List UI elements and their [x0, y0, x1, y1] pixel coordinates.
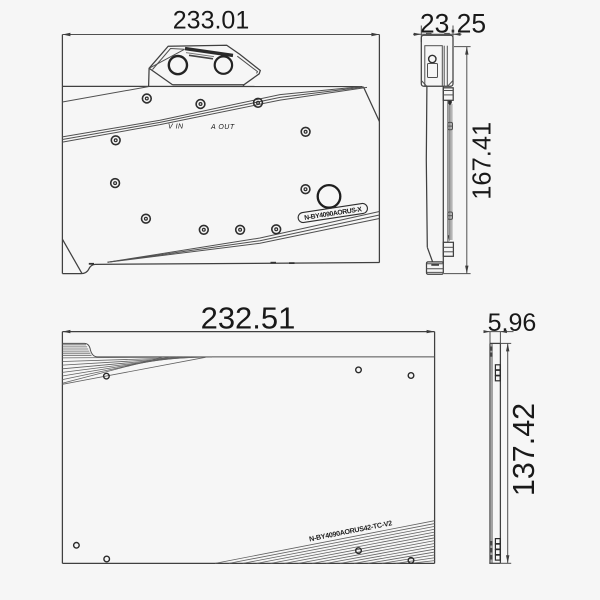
svg-text:V IN: V IN	[168, 124, 184, 131]
svg-text:137.42: 137.42	[507, 403, 541, 496]
svg-text:167.41: 167.41	[469, 122, 497, 200]
svg-text:A OUT: A OUT	[210, 124, 235, 131]
svg-text:5.96: 5.96	[488, 309, 537, 337]
svg-text:233.01: 233.01	[173, 7, 249, 35]
svg-text:232.51: 232.51	[201, 301, 296, 336]
